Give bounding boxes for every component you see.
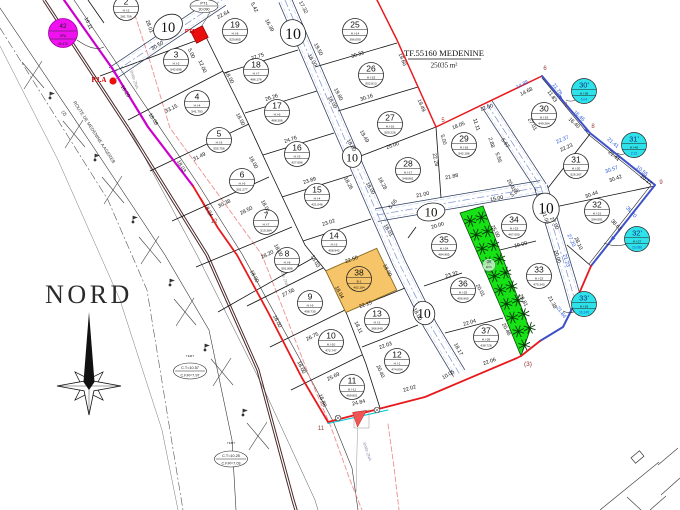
svg-text:438.728: 438.728 bbox=[480, 344, 491, 348]
svg-text:H.I-29: H.I-29 bbox=[580, 304, 589, 308]
svg-text:36: 36 bbox=[458, 279, 468, 289]
svg-text:26: 26 bbox=[366, 64, 376, 74]
svg-text:510.384: 510.384 bbox=[260, 229, 271, 233]
svg-text:H.I-23: H.I-23 bbox=[510, 226, 519, 230]
svg-text:500.226: 500.226 bbox=[384, 131, 395, 135]
svg-text:PT1: PT1 bbox=[200, 1, 208, 6]
svg-text:H.I-7: H.I-7 bbox=[263, 222, 270, 226]
svg-text:486.176: 486.176 bbox=[250, 78, 261, 82]
svg-text:33': 33' bbox=[579, 294, 589, 303]
svg-text:38: 38 bbox=[354, 268, 364, 278]
svg-text:17: 17 bbox=[272, 101, 282, 111]
svg-text:H.I-18: H.I-18 bbox=[460, 145, 469, 149]
svg-text:16: 16 bbox=[292, 143, 302, 153]
svg-text:EV.1: EV.1 bbox=[486, 265, 492, 269]
svg-text:501.888: 501.888 bbox=[281, 267, 292, 271]
svg-text:10: 10 bbox=[161, 20, 176, 36]
svg-text:25035 m²: 25035 m² bbox=[431, 62, 458, 70]
svg-text:39: 39 bbox=[487, 259, 492, 264]
svg-text:15: 15 bbox=[312, 185, 322, 195]
svg-text:526.267: 526.267 bbox=[570, 173, 581, 177]
svg-text:H.I-21: H.I-21 bbox=[593, 211, 602, 215]
svg-text:427.696: 427.696 bbox=[291, 161, 302, 165]
svg-text:548.861: 548.861 bbox=[402, 177, 413, 181]
svg-text:12: 12 bbox=[392, 350, 402, 360]
svg-text:H.I-24: H.I-24 bbox=[440, 246, 449, 250]
svg-text:14: 14 bbox=[329, 231, 339, 241]
svg-text:12: 12 bbox=[211, 219, 218, 225]
svg-text:H.I-4: H.I-4 bbox=[314, 196, 321, 200]
svg-text:H.I-14: H.I-14 bbox=[351, 31, 360, 35]
svg-text:30: 30 bbox=[539, 104, 549, 114]
svg-text:PT1: PT1 bbox=[185, 29, 195, 35]
svg-text:421.046: 421.046 bbox=[311, 203, 322, 207]
svg-text:281.756: 281.756 bbox=[120, 15, 131, 19]
svg-text:H.I-26: H.I-26 bbox=[482, 337, 491, 341]
svg-text:H.I-6: H.I-6 bbox=[239, 181, 246, 185]
svg-text:594.991: 594.991 bbox=[591, 218, 602, 222]
svg-text:32: 32 bbox=[592, 200, 602, 210]
svg-text:474.094: 474.094 bbox=[391, 368, 402, 372]
svg-text:467.000: 467.000 bbox=[508, 233, 519, 237]
svg-text:31': 31' bbox=[629, 135, 639, 144]
svg-text:396.090: 396.090 bbox=[349, 38, 360, 42]
svg-text:484.965: 484.965 bbox=[438, 253, 449, 257]
svg-text:C.F.R=7.03: C.F.R=7.03 bbox=[221, 462, 240, 466]
svg-text:DPA: DPA bbox=[60, 34, 67, 38]
svg-text:TEMT: TEMT bbox=[186, 354, 194, 358]
svg-text:502.813: 502.813 bbox=[365, 82, 376, 86]
svg-text:H.I-5: H.I-5 bbox=[294, 154, 301, 158]
svg-text:488.306: 488.306 bbox=[271, 119, 282, 123]
svg-text:H.I-11: H.I-11 bbox=[348, 387, 356, 391]
svg-text:H.I-2: H.I-2 bbox=[123, 8, 130, 12]
svg-text:9: 9 bbox=[308, 292, 313, 302]
svg-text:H.I-7: H.I-7 bbox=[253, 71, 260, 75]
svg-text:10: 10 bbox=[285, 26, 301, 43]
svg-text:469.851: 469.851 bbox=[346, 394, 357, 398]
svg-text:NORD: NORD bbox=[45, 280, 133, 309]
svg-text:H.I-22: H.I-22 bbox=[535, 276, 544, 280]
svg-text:402.184: 402.184 bbox=[353, 286, 364, 290]
svg-text:H.I-1: H.I-1 bbox=[394, 361, 401, 365]
svg-text:P.I.A: P.I.A bbox=[92, 76, 107, 84]
svg-text:H.I-2: H.I-2 bbox=[374, 320, 381, 324]
svg-text:2: 2 bbox=[124, 0, 129, 7]
svg-text:H.I-38: H.I-38 bbox=[580, 91, 589, 95]
svg-text:8: 8 bbox=[285, 249, 290, 259]
svg-text:2.23: 2.23 bbox=[631, 152, 638, 156]
svg-text:H.I-25: H.I-25 bbox=[459, 290, 468, 294]
svg-text:30': 30' bbox=[579, 81, 589, 90]
svg-text:33: 33 bbox=[534, 265, 544, 275]
svg-text:472.747: 472.747 bbox=[325, 349, 336, 353]
svg-text:TF.55160 MEDENINE: TF.55160 MEDENINE bbox=[404, 48, 484, 58]
svg-text:H.I-8: H.I-8 bbox=[232, 31, 239, 35]
svg-text:B-1: B-1 bbox=[357, 279, 362, 283]
svg-text:11: 11 bbox=[348, 376, 357, 386]
svg-text:30.090: 30.090 bbox=[199, 8, 210, 12]
svg-text:501.277: 501.277 bbox=[236, 188, 247, 192]
svg-text:H.I-5: H.I-5 bbox=[216, 140, 223, 144]
svg-text:34: 34 bbox=[509, 215, 519, 225]
svg-text:5.04: 5.04 bbox=[581, 98, 588, 102]
svg-text:C.T=10.25: C.T=10.25 bbox=[222, 454, 240, 458]
svg-text:H.I-3: H.I-3 bbox=[173, 61, 180, 65]
svg-text:40.470: 40.470 bbox=[58, 42, 68, 46]
svg-text:H.I-4: H.I-4 bbox=[194, 103, 201, 107]
svg-text:498.730: 498.730 bbox=[304, 310, 315, 314]
svg-text:42: 42 bbox=[59, 23, 67, 30]
svg-text:555.756: 555.756 bbox=[213, 147, 224, 151]
svg-text:13: 13 bbox=[372, 309, 382, 319]
svg-text:31: 31 bbox=[571, 155, 581, 165]
svg-text:H.I-40: H.I-40 bbox=[630, 145, 639, 149]
svg-text:541.793: 541.793 bbox=[191, 110, 202, 114]
svg-text:6: 6 bbox=[240, 170, 245, 180]
svg-text:H.I-3: H.I-3 bbox=[331, 242, 338, 246]
svg-text:25: 25 bbox=[350, 20, 360, 30]
svg-text:H.I-6: H.I-6 bbox=[274, 112, 281, 116]
svg-text:H.I-10: H.I-10 bbox=[327, 342, 336, 346]
svg-text:10: 10 bbox=[425, 205, 438, 220]
svg-text:23.086: 23.086 bbox=[632, 246, 642, 250]
svg-text:520.865: 520.865 bbox=[229, 38, 240, 42]
svg-text:475.343: 475.343 bbox=[533, 283, 544, 287]
svg-text:29: 29 bbox=[459, 134, 469, 144]
svg-text:4: 4 bbox=[195, 92, 200, 102]
svg-text:449.284: 449.284 bbox=[538, 122, 549, 126]
svg-text:C.F.R=7.97: C.F.R=7.97 bbox=[180, 374, 199, 378]
svg-text:37: 37 bbox=[481, 326, 491, 336]
svg-text:28: 28 bbox=[403, 159, 413, 169]
svg-text:27: 27 bbox=[385, 113, 395, 123]
svg-text:H.I-15: H.I-15 bbox=[367, 75, 376, 79]
svg-text:10: 10 bbox=[326, 331, 336, 341]
svg-text:TEMT: TEMT bbox=[227, 441, 235, 445]
svg-text:H.I-20: H.I-20 bbox=[572, 166, 581, 170]
svg-text:35: 35 bbox=[439, 235, 449, 245]
svg-text:H.I-19: H.I-19 bbox=[540, 115, 549, 119]
svg-text:H.I-9: H.I-9 bbox=[307, 303, 314, 307]
svg-text:H.I-27: H.I-27 bbox=[633, 239, 642, 243]
svg-text:5: 5 bbox=[217, 129, 222, 139]
svg-text:456.960: 456.960 bbox=[457, 297, 468, 301]
svg-text:542.186: 542.186 bbox=[458, 152, 469, 156]
svg-text:32': 32' bbox=[632, 229, 642, 238]
svg-text:(3): (3) bbox=[524, 361, 532, 368]
svg-text:621.021: 621.021 bbox=[485, 271, 494, 274]
svg-text:19: 19 bbox=[230, 20, 240, 30]
svg-text:H.I-16: H.I-16 bbox=[386, 124, 395, 128]
svg-text:C.T=10.57: C.T=10.57 bbox=[181, 366, 199, 370]
svg-text:3: 3 bbox=[174, 50, 179, 60]
svg-text:11: 11 bbox=[318, 426, 325, 432]
svg-text:16.245: 16.245 bbox=[579, 311, 589, 315]
svg-text:408.942: 408.942 bbox=[328, 249, 339, 253]
svg-text:H.I-17: H.I-17 bbox=[404, 170, 413, 174]
svg-text:H.I-8: H.I-8 bbox=[284, 260, 291, 264]
svg-text:366.949: 366.949 bbox=[371, 327, 382, 331]
svg-text:542.698: 542.698 bbox=[170, 68, 181, 72]
